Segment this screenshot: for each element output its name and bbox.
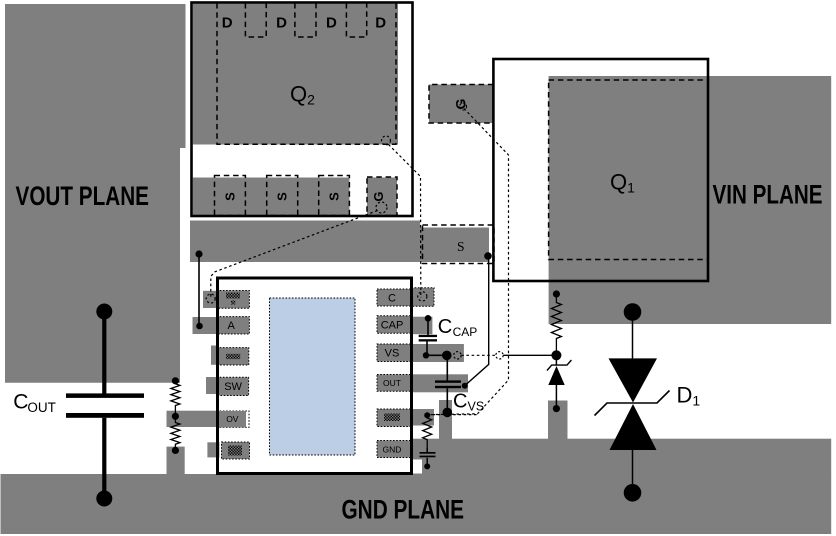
svg-text:D: D (375, 15, 386, 32)
svg-text:VIN PLANE: VIN PLANE (713, 180, 823, 210)
svg-text:S: S (223, 192, 238, 201)
svg-text:C: C (438, 316, 452, 338)
svg-text:C: C (453, 391, 467, 413)
svg-text:D: D (326, 15, 337, 32)
svg-text:C: C (13, 391, 28, 414)
svg-text:VS: VS (468, 400, 485, 414)
svg-text:G: G (371, 191, 386, 201)
svg-text:GND PLANE: GND PLANE (342, 495, 465, 525)
svg-text:CAP: CAP (381, 320, 404, 332)
svg-text:S: S (327, 192, 342, 201)
svg-text:OV: OV (226, 414, 239, 424)
svg-text:OUT: OUT (27, 400, 56, 415)
svg-text:VS: VS (385, 348, 400, 360)
svg-text:CAP: CAP (453, 325, 478, 339)
svg-text:GND: GND (383, 445, 402, 455)
svg-text:D: D (276, 15, 287, 32)
svg-text:VOUT PLANE: VOUT PLANE (16, 181, 150, 211)
svg-text:C: C (388, 293, 396, 305)
svg-text:SW: SW (224, 381, 242, 393)
svg-text:A: A (228, 320, 236, 332)
svg-text:OUT: OUT (383, 378, 401, 388)
svg-text:S: S (275, 192, 290, 201)
svg-text:D: D (222, 15, 233, 32)
svg-text:S: S (457, 239, 465, 254)
